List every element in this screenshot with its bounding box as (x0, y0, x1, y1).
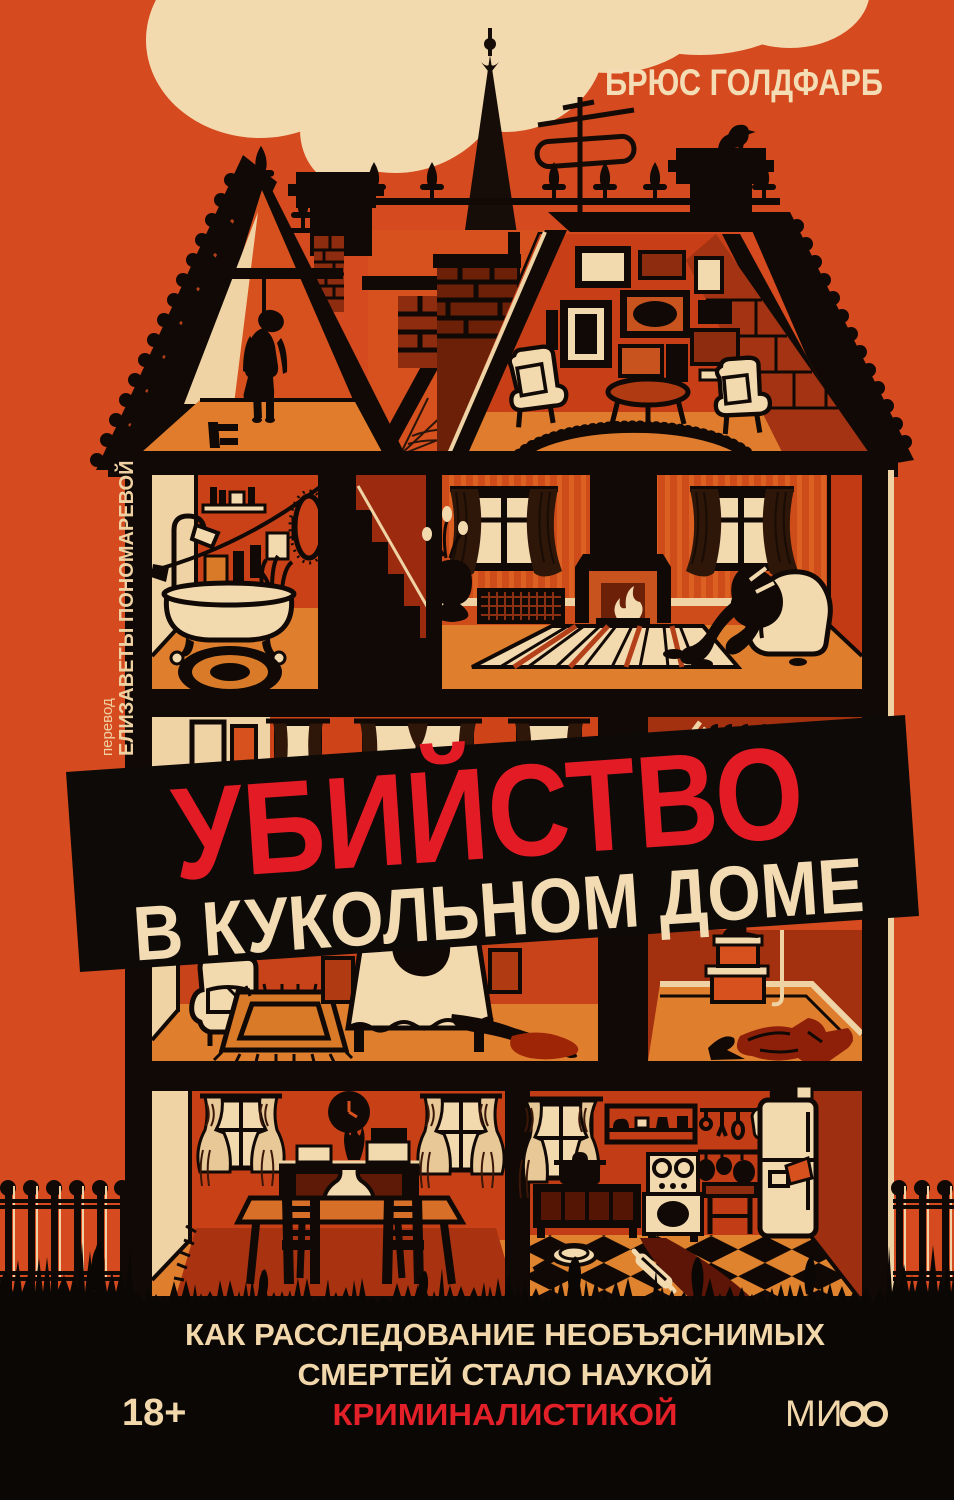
svg-text:КАК РАССЛЕДОВАНИЕ НЕОБЪЯСНИМЫХ: КАК РАССЛЕДОВАНИЕ НЕОБЪЯСНИМЫХ (185, 1317, 825, 1352)
svg-text:МИ: МИ (785, 1393, 842, 1434)
svg-text:перевод: перевод (99, 698, 116, 756)
svg-text:18+: 18+ (122, 1392, 186, 1434)
svg-text:СМЕРТЕЙ СТАЛО НАУКОЙ: СМЕРТЕЙ СТАЛО НАУКОЙ (298, 1356, 713, 1392)
svg-text:БРЮС ГОЛДФАРБ: БРЮС ГОЛДФАРБ (605, 62, 883, 103)
svg-text:ЕЛИЗАВЕТЫ ПОНОМАРЕВОЙ: ЕЛИЗАВЕТЫ ПОНОМАРЕВОЙ (114, 461, 138, 756)
svg-text:КРИМИНАЛИСТИКОЙ: КРИМИНАЛИСТИКОЙ (333, 1396, 678, 1432)
